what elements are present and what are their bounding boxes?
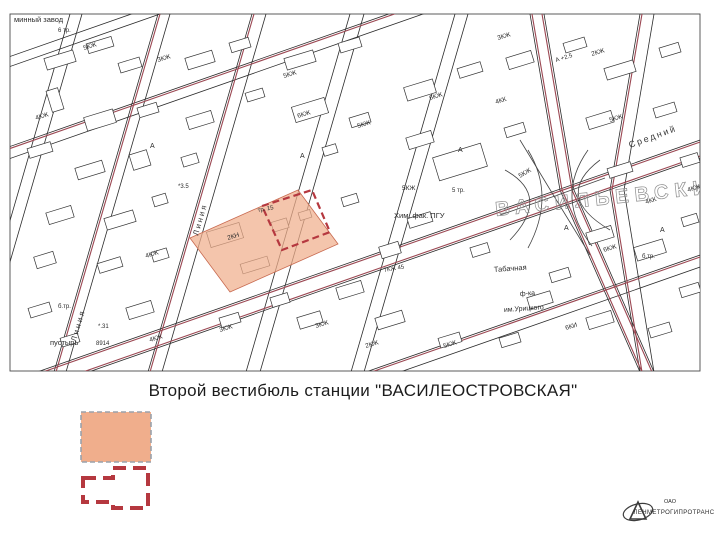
- map-label: б.тр.: [642, 254, 655, 260]
- map-label: А: [458, 147, 463, 154]
- map-label: А: [564, 225, 569, 232]
- map-label: ф-ка: [520, 290, 536, 298]
- construction-area-swatch: [81, 412, 151, 462]
- map-label: 8914: [96, 341, 110, 347]
- map-label: Хим. фак. ПГУ: [394, 211, 445, 220]
- map-label: пустырь: [50, 338, 78, 347]
- map-label: б.тр.: [58, 304, 71, 310]
- map-label: А: [150, 143, 155, 150]
- lenmetrogiprotrans-logo: ОАО ЛЕНМЕТРОГИПРОТРАНС: [608, 490, 723, 532]
- map-label: *.31: [98, 324, 109, 330]
- map-label: А: [300, 153, 305, 160]
- map-canvas: минный завод6 тр.5КЖ3КЖ5КЖ6КЖ4КЖА*3.54КЖ…: [0, 0, 726, 375]
- map-label: *3.5: [178, 184, 189, 190]
- city-plan-map: минный завод6 тр.5КЖ3КЖ5КЖ6КЖ4КЖА*3.54КЖ…: [0, 0, 726, 375]
- page: минный завод6 тр.5КЖ3КЖ5КЖ6КЖ4КЖА*3.54КЖ…: [0, 0, 726, 546]
- logo-name: ЛЕНМЕТРОГИПРОТРАНС: [633, 510, 714, 516]
- vestibule-boundary-swatch: [83, 468, 148, 508]
- page-title: Второй вестибюль станции "ВАСИЛЕОСТРОВСК…: [0, 381, 726, 401]
- logo-org-type: ОАО: [664, 499, 677, 505]
- map-label: 5 тр.: [452, 188, 465, 194]
- map-label: 5КЖ: [402, 185, 415, 192]
- map-label: 6 тр.: [58, 28, 71, 34]
- map-label: минный завод: [14, 15, 64, 24]
- map-label: А: [660, 227, 665, 234]
